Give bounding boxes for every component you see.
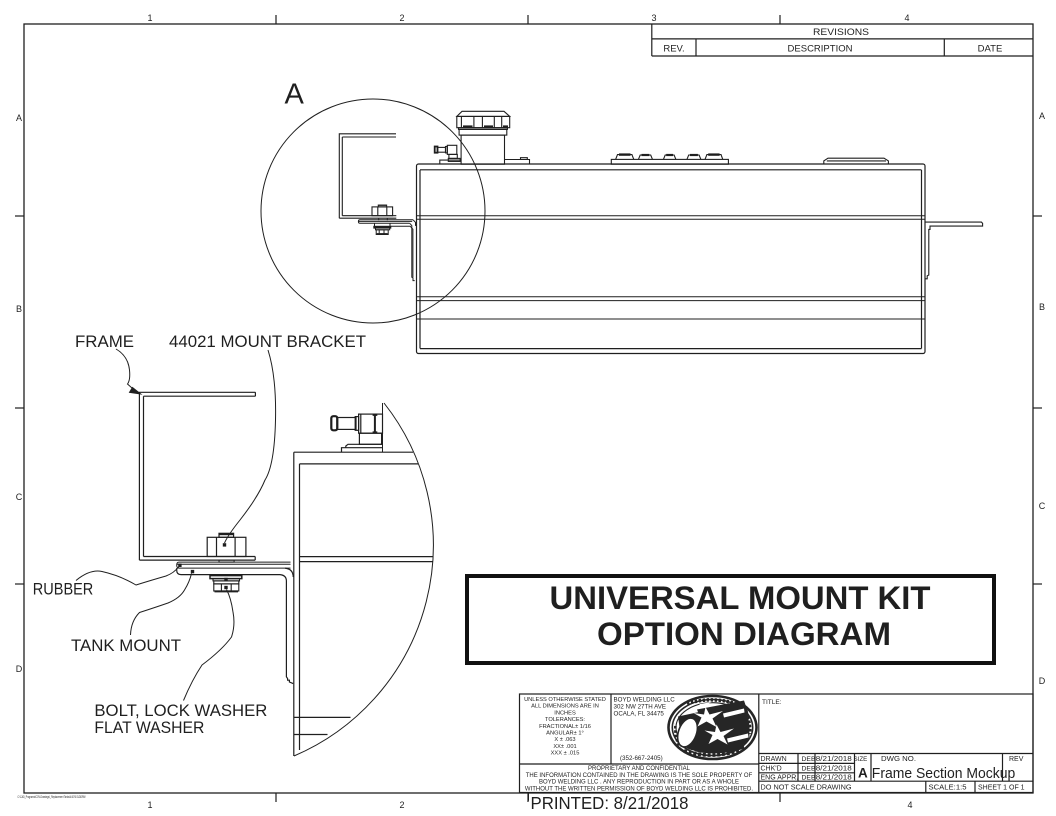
svg-text:DEB: DEB [802,765,816,772]
svg-text:TOLERANCES:: TOLERANCES: [545,717,585,723]
svg-text:OPTION DIAGRAM: OPTION DIAGRAM [597,616,891,652]
svg-text:8/21/2018: 8/21/2018 [816,765,852,772]
svg-text:1: 1 [147,13,152,23]
svg-text:B: B [16,304,22,314]
svg-text:A: A [16,113,22,123]
svg-text:TITLE:: TITLE: [762,699,782,706]
svg-text:X ± .063: X ± .063 [554,737,575,743]
svg-text:C: C [16,492,23,502]
svg-text:Frame Section Mockup: Frame Section Mockup [872,765,1016,782]
svg-text:SCALE:1:5: SCALE:1:5 [929,784,967,791]
svg-text:RUBBER: RUBBER [33,580,94,599]
svg-text:2: 2 [399,13,404,23]
svg-text:D: D [16,664,23,674]
svg-text:8/21/2018: 8/21/2018 [816,775,852,782]
svg-text:REVISIONS: REVISIONS [813,27,869,38]
svg-text:REV.: REV. [663,44,684,55]
svg-text:(352-667-2405): (352-667-2405) [620,755,663,762]
svg-text:FRACTIONAL± 1/16: FRACTIONAL± 1/16 [539,724,591,730]
svg-text:8/21/2018: 8/21/2018 [816,756,852,763]
svg-text:ANGULAR± 1°: ANGULAR± 1° [546,731,584,737]
svg-text:DWG NO.: DWG NO. [881,756,916,763]
svg-text:1: 1 [147,800,152,810]
svg-text:4: 4 [907,800,912,810]
svg-text:WITHOUT THE WRITTEN PERMISSION: WITHOUT THE WRITTEN PERMISSION OF BOYD W… [525,786,753,792]
svg-text:XX± .001: XX± .001 [553,744,576,750]
svg-text:DEB: DEB [802,775,816,782]
svg-text:REV: REV [1009,756,1024,763]
svg-text:302 NW 27TH AVE: 302 NW 27TH AVE [614,704,667,711]
svg-text:UNIVERSAL MOUNT KIT: UNIVERSAL MOUNT KIT [550,580,931,616]
svg-text:D: D [1039,676,1046,686]
svg-text:B: B [1039,302,1045,312]
svg-text:FLAT WASHER: FLAT WASHER [94,718,204,737]
svg-text:CHK'D: CHK'D [761,765,782,772]
svg-text:THE INFORMATION CONTAINED IN T: THE INFORMATION CONTAINED IN THE DRAWING… [526,773,753,779]
svg-text:A: A [858,766,868,781]
svg-text:BOYD WELDING LLC: BOYD WELDING LLC [614,697,676,704]
svg-text:A: A [1039,111,1045,121]
svg-text:3: 3 [651,13,656,23]
svg-text:C: C [1039,501,1046,511]
svg-text:FRAME: FRAME [75,332,134,351]
svg-text:SIZE: SIZE [854,756,868,763]
svg-text:SHEET 1 OF 1: SHEET 1 OF 1 [978,784,1025,791]
svg-text:DO NOT SCALE DRAWING: DO NOT SCALE DRAWING [761,784,852,791]
svg-text:C:\CAD_Programs\COV-Drawings\_: C:\CAD_Programs\COV-Drawings\_Replacemen… [18,794,86,799]
svg-text:OCALA, FL 34475: OCALA, FL 34475 [614,711,665,718]
svg-text:PRINTED: 8/21/2018: PRINTED: 8/21/2018 [531,793,689,813]
svg-text:44021 MOUNT BRACKET: 44021 MOUNT BRACKET [169,332,366,351]
svg-text:PROPRIETARY AND CONFIDENTIAL: PROPRIETARY AND CONFIDENTIAL [588,766,691,772]
svg-text:ALL DIMENSIONS ARE IN: ALL DIMENSIONS ARE IN [531,704,599,710]
svg-text:DRAWN: DRAWN [761,756,787,763]
svg-text:ENG APPR.: ENG APPR. [761,775,799,782]
svg-text:DESCRIPTION: DESCRIPTION [788,44,853,55]
svg-text:TANK MOUNT: TANK MOUNT [71,636,181,655]
svg-text:INCHES: INCHES [554,710,576,716]
svg-text:4: 4 [904,13,909,23]
svg-text:XXX ± .015: XXX ± .015 [551,751,580,757]
svg-text:UNLESS OTHERWISE STATED: UNLESS OTHERWISE STATED [524,697,606,703]
svg-text:BOYD WELDING LLC . ANY REPRODU: BOYD WELDING LLC . ANY REPRODUCTION IN P… [539,780,739,786]
svg-text:DATE: DATE [978,44,1003,55]
svg-text:DEB: DEB [802,756,816,763]
svg-text:A: A [285,79,305,111]
svg-text:2: 2 [399,800,404,810]
